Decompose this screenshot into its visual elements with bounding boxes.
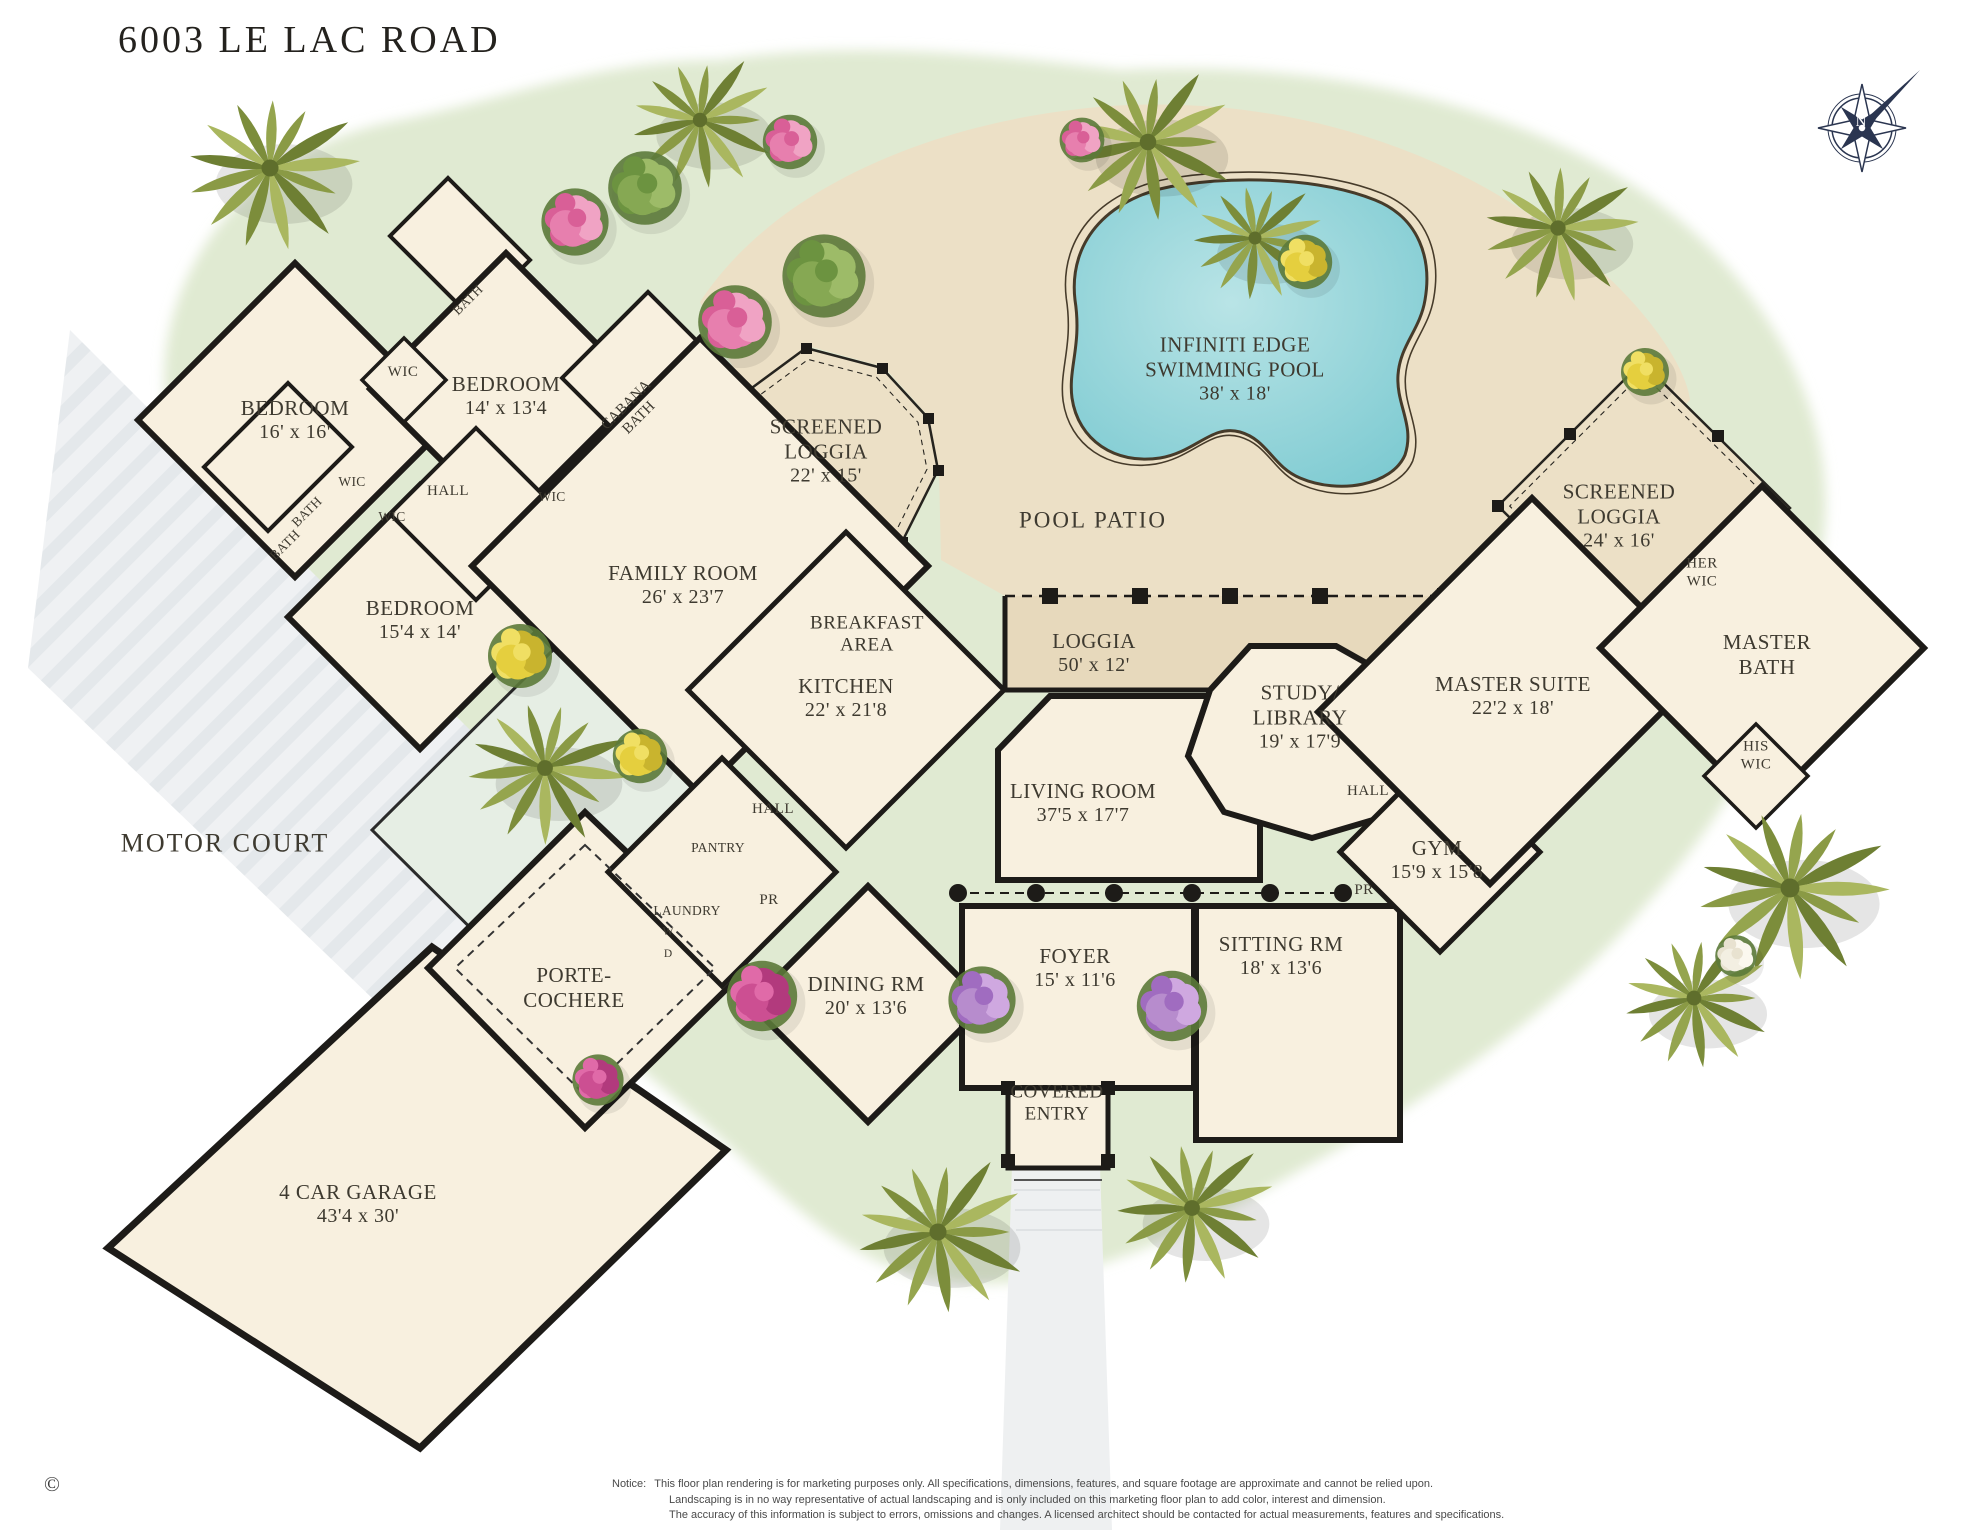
room-label-garage: 4 CAR GARAGE43'4 x 30' (279, 1180, 437, 1228)
flower-bush (1715, 935, 1764, 985)
floorplan-canvas: N (0, 0, 1987, 1536)
floor-plan-page: N 6003 LE LAC ROAD © BEDROOM16' x 16' BE… (0, 0, 1987, 1536)
room-label-family-room: FAMILY ROOM26' x 23'7 (608, 561, 758, 609)
label-hall-kitchen: HALL (752, 801, 794, 819)
compass-north-label: N (1856, 114, 1867, 130)
room-label-bedroom-16: BEDROOM16' x 16' (241, 396, 350, 444)
page-title: 6003 LE LAC ROAD (118, 18, 501, 62)
notice-line-1: This floor plan rendering is for marketi… (654, 1478, 1433, 1490)
room-label-her-wic: HERWIC (1686, 555, 1718, 590)
room-label-bedroom-14: BEDROOM14' x 13'4 (452, 372, 561, 420)
notice-line-2: Landscaping is in no way representative … (612, 1493, 1504, 1509)
room-label-porte-cochere: PORTE-COCHERE (523, 963, 625, 1013)
room-label-master-bath: MASTERBATH (1723, 630, 1811, 680)
room-label-covered-entry: COVEREDENTRY (1010, 1082, 1103, 1127)
room-label-study-library: STUDY/LIBRARY19' x 17'9 (1253, 680, 1348, 753)
label-powder-room-b: PR (1354, 882, 1373, 900)
notice-prefix: Notice: (612, 1478, 654, 1490)
label-dryer: D (664, 948, 672, 962)
compass-rose-icon: N (1818, 70, 1920, 172)
room-label-loggia: LOGGIA50' x 12' (1052, 629, 1135, 677)
notice-line-3: The accuracy of this information is subj… (612, 1508, 1504, 1524)
room-label-sitting-room: SITTING RM18' x 13'6 (1219, 932, 1344, 980)
room-label-master-suite: MASTER SUITE22'2 x 18' (1435, 672, 1591, 720)
room-label-living-room: LIVING ROOM37'5 x 17'7 (1010, 779, 1156, 827)
room-label-pool: INFINITI EDGESWIMMING POOL38' x 18' (1145, 332, 1325, 405)
room-label-kitchen: KITCHEN22' x 21'8 (798, 674, 894, 722)
area-label-motor-court: MOTOR COURT (121, 829, 329, 860)
label-hall-bedroom-wing: HALL (427, 483, 469, 501)
label-hall-master: HALL (1347, 783, 1389, 801)
label-pantry: PANTRY (691, 840, 745, 856)
label-wic-a: WIC (388, 364, 419, 382)
room-label-bedroom-15: BEDROOM15'4 x 14' (366, 596, 475, 644)
room-label-screened-loggia-1: SCREENEDLOGGIA22' x 15' (770, 414, 883, 487)
label-wic-cabana: WIC (538, 489, 565, 505)
room-label-dining-room: DINING RM20' x 13'6 (807, 972, 924, 1020)
label-wic-c: WIC (378, 509, 405, 525)
copyright-mark: © (44, 1472, 60, 1497)
label-powder-room-a: PR (759, 892, 778, 910)
room-label-breakfast-area: BREAKFASTAREA (810, 613, 924, 658)
disclaimer-notice: Notice:This floor plan rendering is for … (612, 1477, 1504, 1524)
label-washer: W (663, 926, 674, 940)
room-label-screened-loggia-2: SCREENEDLOGGIA24' x 16' (1563, 479, 1676, 552)
room-label-foyer: FOYER15' x 11'6 (1034, 944, 1115, 992)
label-wic-b: WIC (338, 474, 365, 490)
room-label-gym: GYM15'9 x 15'8 (1391, 836, 1484, 884)
area-label-pool-patio: POOL PATIO (1019, 506, 1167, 533)
room-label-his-wic: HISWIC (1741, 738, 1772, 773)
entry-walkway (1000, 1166, 1112, 1530)
label-laundry: LAUNDRY (653, 903, 720, 919)
